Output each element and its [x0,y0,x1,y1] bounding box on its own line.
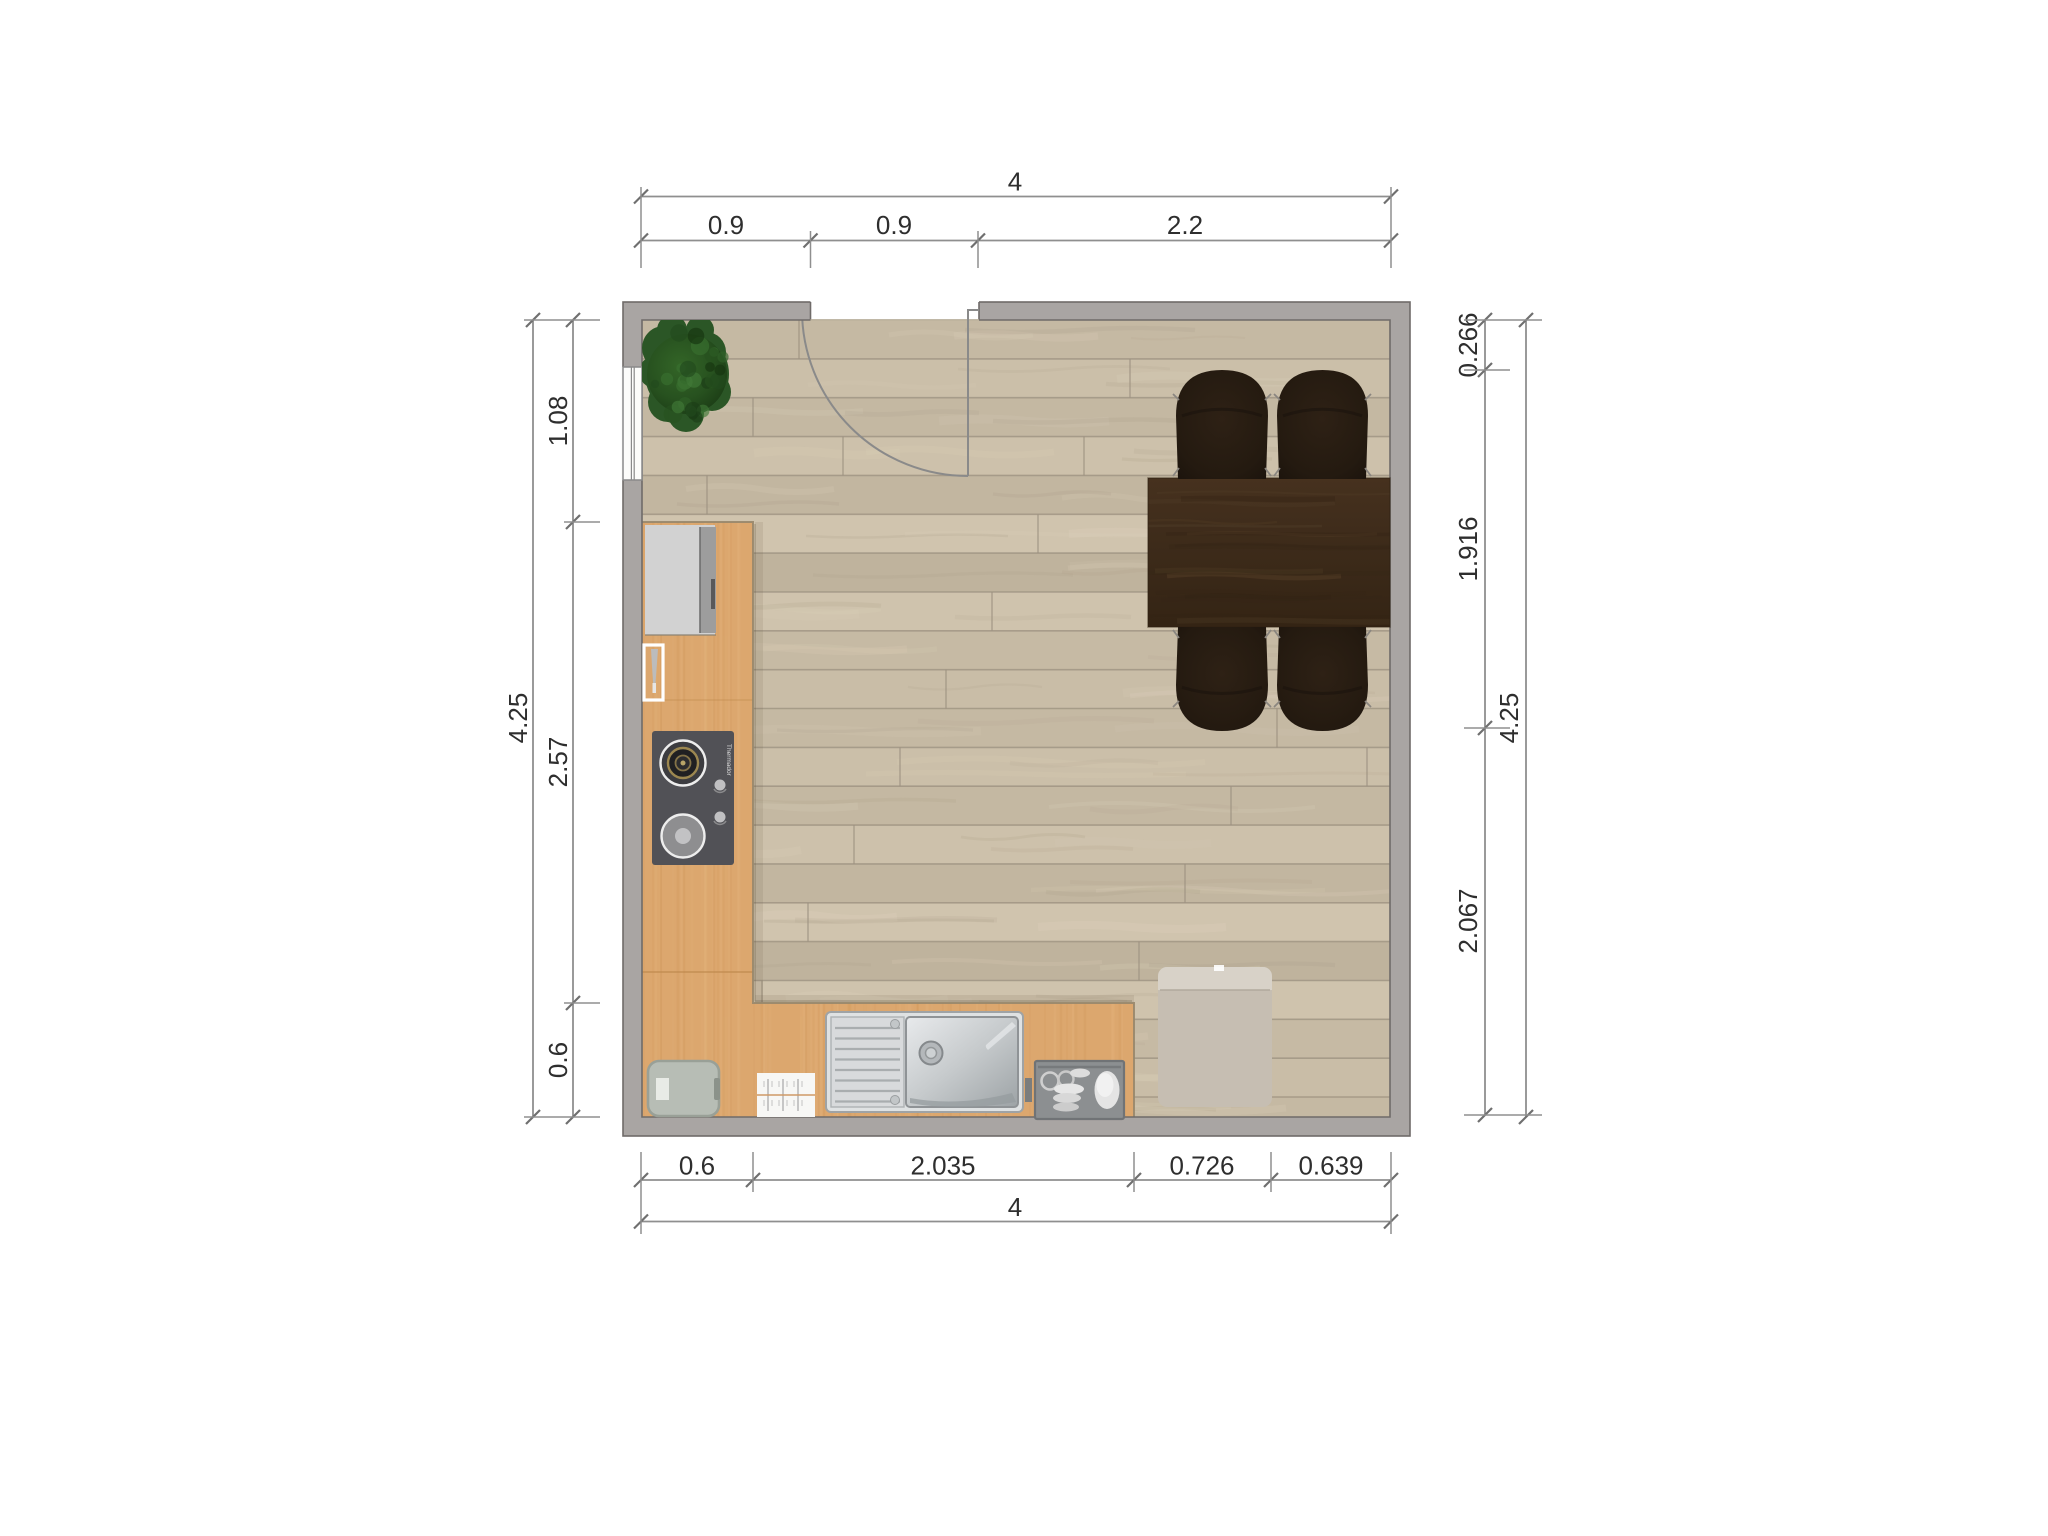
svg-text:1.916: 1.916 [1453,516,1483,581]
svg-text:Thermador: Thermador [725,744,732,777]
svg-text:0.639: 0.639 [1298,1151,1363,1181]
svg-text:4.25: 4.25 [1494,693,1524,744]
svg-text:0.6: 0.6 [543,1042,573,1078]
svg-text:2.57: 2.57 [543,737,573,788]
svg-text:4: 4 [1008,167,1022,197]
svg-text:0.9: 0.9 [876,210,912,240]
svg-text:1.08: 1.08 [543,396,573,447]
svg-text:0.6: 0.6 [679,1151,715,1181]
svg-text:2.067: 2.067 [1453,888,1483,953]
svg-text:0.9: 0.9 [708,210,744,240]
svg-text:4.25: 4.25 [503,693,533,744]
svg-text:0.266: 0.266 [1453,312,1483,377]
svg-text:2.035: 2.035 [910,1151,975,1181]
svg-text:0.726: 0.726 [1169,1151,1234,1181]
svg-text:2.2: 2.2 [1167,210,1203,240]
svg-text:4: 4 [1008,1192,1022,1222]
